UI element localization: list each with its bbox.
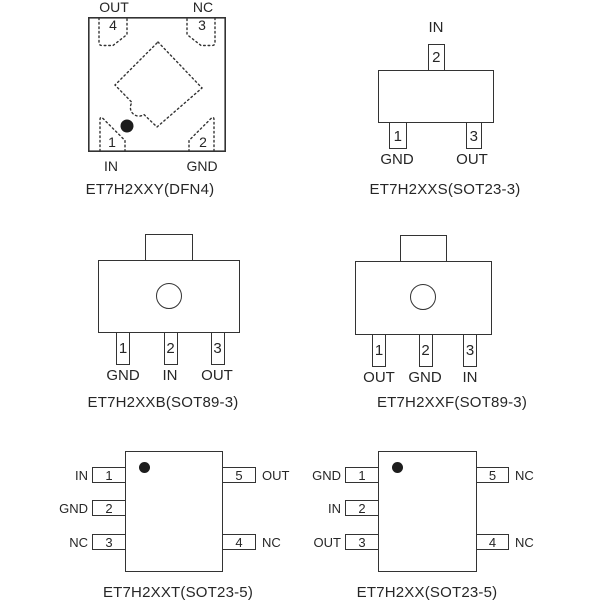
sot89-f-title: ET7H2XXF(SOT89-3): [377, 395, 527, 412]
sot89-b-pin1: 1: [116, 331, 130, 365]
dfn4-package-drawing: 4 3 1 2: [88, 17, 226, 152]
sot89-b-pin1-number: 1: [119, 340, 127, 357]
sot23-5t-pin5: 5: [222, 467, 256, 483]
sot89-b-label-out: OUT: [201, 368, 233, 384]
sot23-5x-pin1-indicator-dot: [392, 462, 403, 473]
dfn4-pin4-number: 4: [109, 17, 117, 33]
pinout-sheet: OUT NC 4 3 1 2 IN GND ET7H2XXY(DFN4) IN …: [0, 0, 600, 610]
dfn4-package-outline: [89, 18, 225, 151]
sot23-3-label-gnd: GND: [380, 152, 413, 168]
sot23-5t-pin4: 4: [222, 534, 256, 550]
sot23-5t-pin2-number: 2: [105, 501, 112, 516]
sot23-3-title: ET7H2XXS(SOT23-3): [370, 182, 521, 199]
dfn4-label-in: IN: [104, 159, 118, 174]
sot89-b-tab: [145, 234, 193, 262]
sot23-5x-pin1: 1: [345, 467, 379, 483]
sot23-5x-pin3-number: 3: [358, 535, 365, 550]
dfn4-label-gnd: GND: [186, 159, 217, 174]
sot23-5x-pin4: 4: [476, 534, 509, 550]
sot23-5x-label-nc-bottom: NC: [515, 536, 534, 550]
sot23-5t-pin5-number: 5: [235, 468, 242, 483]
sot23-5x-pin5: 5: [476, 467, 509, 483]
sot89-f-pin3-number: 3: [466, 342, 474, 359]
dfn4-title: ET7H2XXY(DFN4): [86, 182, 215, 199]
sot23-5x-label-out: OUT: [273, 536, 341, 550]
sot89-f-pin2-number: 2: [421, 342, 429, 359]
sot89-b-title: ET7H2XXB(SOT89-3): [88, 395, 239, 412]
dfn4-exposed-pad-diamond: [115, 42, 202, 127]
sot23-5t-pin3: 3: [92, 534, 126, 550]
sot23-3-pin3: 3: [466, 121, 482, 149]
sot89-f-tab: [400, 235, 447, 263]
sot89-f-pin1: 1: [372, 333, 386, 367]
sot23-5x-pin5-number: 5: [489, 468, 496, 483]
sot23-5x-label-in: IN: [273, 502, 341, 516]
sot89-b-label-gnd: GND: [106, 368, 139, 384]
dfn4-pin2-number: 2: [199, 134, 207, 150]
sot89-f-label-in: IN: [463, 370, 478, 386]
sot23-5t-pin3-number: 3: [105, 535, 112, 550]
sot23-5t-label-gnd: GND: [20, 502, 88, 516]
sot23-3-pin3-number: 3: [470, 128, 478, 145]
sot89-f-label-out: OUT: [363, 370, 395, 386]
sot23-3-package-body: [378, 70, 494, 123]
sot23-5x-label-nc-top: NC: [515, 469, 534, 483]
dfn4-label-nc: NC: [193, 0, 213, 15]
sot23-3-pin1-number: 1: [394, 128, 402, 145]
sot23-5x-pin4-number: 4: [489, 535, 496, 550]
sot89-f-pin3: 3: [463, 333, 477, 367]
sot23-5x-pin3: 3: [345, 534, 379, 550]
sot89-b-pin3: 3: [211, 331, 225, 365]
sot23-5t-pin4-number: 4: [235, 535, 242, 550]
dfn4-pin1-number: 1: [108, 134, 116, 150]
sot23-5x-label-gnd: GND: [273, 469, 341, 483]
dfn4-pin3-number: 3: [198, 17, 206, 33]
sot23-5x-pin2: 2: [345, 500, 379, 516]
sot23-3-pin2-number: 2: [432, 49, 440, 66]
sot23-5t-label-in: IN: [20, 469, 88, 483]
dfn4-label-out: OUT: [99, 0, 129, 15]
dfn4-pin1-indicator-dot: [121, 120, 134, 133]
sot89-f-label-gnd: GND: [408, 370, 441, 386]
sot89-f-pin2: 2: [419, 333, 433, 367]
sot23-5t-label-nc: NC: [20, 536, 88, 550]
sot23-5t-pin1-number: 1: [105, 468, 112, 483]
sot23-3-pin1: 1: [389, 121, 407, 149]
sot89-f-body-circle: [410, 284, 436, 310]
sot89-b-pin2-number: 2: [166, 340, 174, 357]
sot23-5x-title: ET7H2XX(SOT23-5): [357, 585, 498, 602]
sot23-3-label-out: OUT: [456, 152, 488, 168]
sot23-5x-pin2-number: 2: [358, 501, 365, 516]
sot89-f-pin1-number: 1: [375, 342, 383, 359]
sot23-3-pin2: 2: [428, 44, 445, 72]
sot23-5t-pin1: 1: [92, 467, 126, 483]
sot89-b-pin2: 2: [164, 331, 178, 365]
sot23-5x-pin1-number: 1: [358, 468, 365, 483]
sot89-b-body-circle: [156, 283, 182, 309]
sot89-b-label-in: IN: [163, 368, 178, 384]
sot23-5t-title: ET7H2XXT(SOT23-5): [103, 585, 253, 602]
sot23-3-label-in: IN: [429, 20, 444, 36]
sot23-5t-pin1-indicator-dot: [139, 462, 150, 473]
sot23-5t-pin2: 2: [92, 500, 126, 516]
sot89-b-pin3-number: 3: [213, 340, 221, 357]
